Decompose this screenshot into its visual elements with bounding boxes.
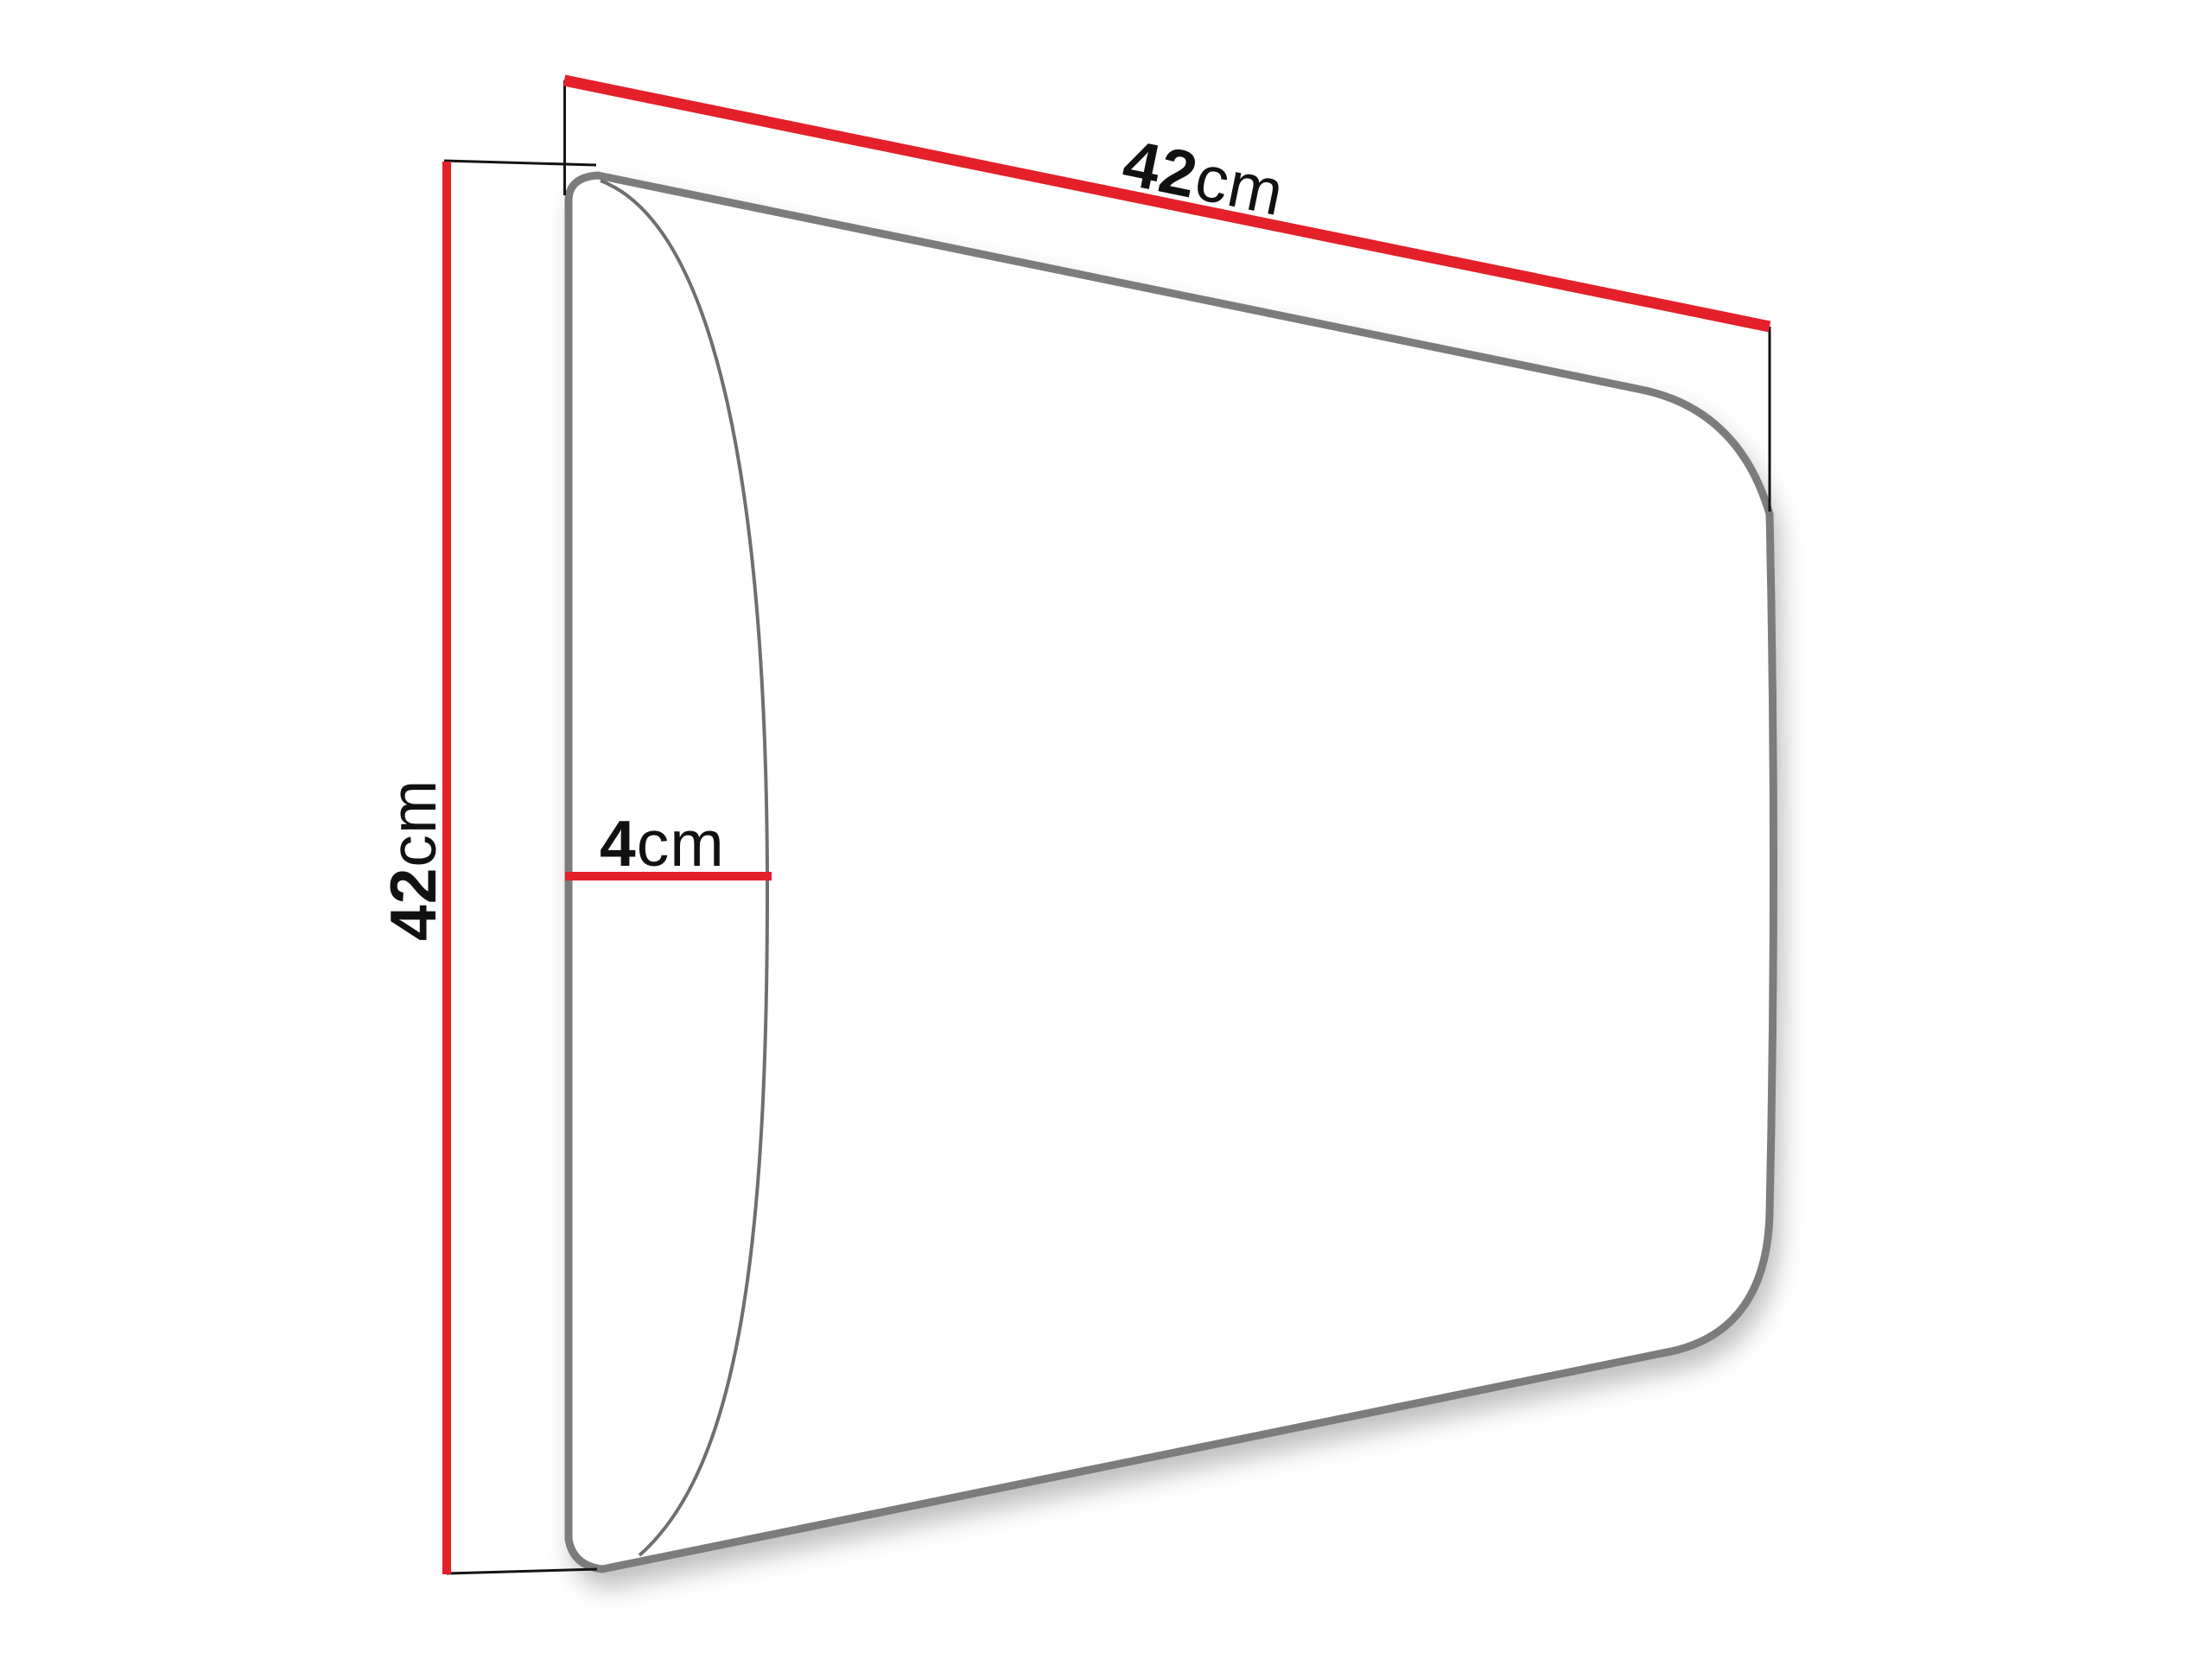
height-unit: cm (377, 779, 449, 868)
panel-dimension-diagram: 42cm 42cm 4cm (0, 0, 2212, 1659)
width-dimension-label: 42cm (1117, 125, 1290, 229)
depth-dimension-label: 4cm (600, 807, 725, 880)
height-dimension-label: 42cm (377, 779, 449, 941)
extension-line-bottom-left-horizontal (447, 1569, 597, 1573)
depth-value: 4 (600, 807, 637, 880)
extension-line-top-left-horizontal (444, 161, 596, 165)
width-value: 42 (1117, 125, 1205, 211)
depth-unit: cm (637, 807, 725, 880)
height-value: 42 (377, 868, 449, 941)
diagram-canvas: 42cm 42cm 4cm (0, 0, 2212, 1659)
